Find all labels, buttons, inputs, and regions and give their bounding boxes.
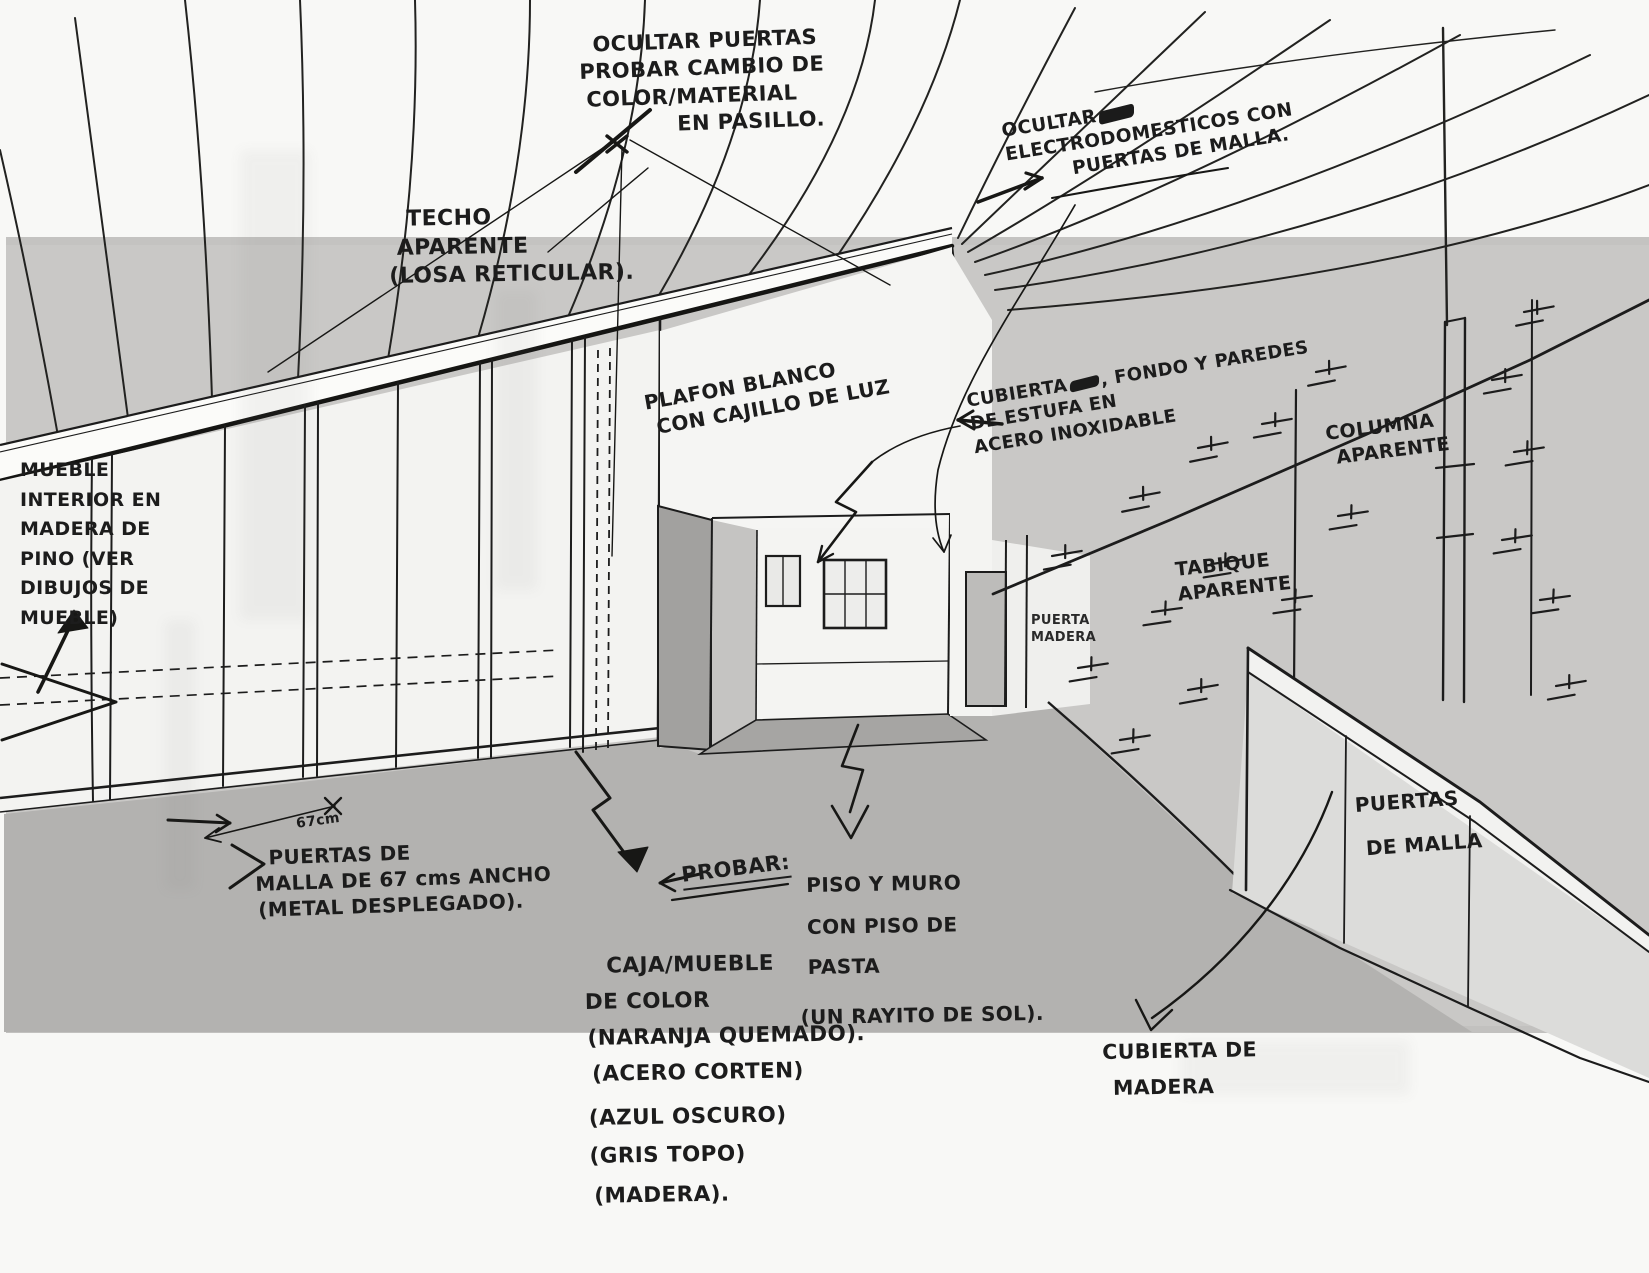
note-line: CON PISO DE: [807, 908, 1043, 942]
note-line: (MADERA).: [594, 1177, 868, 1212]
note-puertas-malla-der: PUERTAS DE MALLA: [1354, 783, 1483, 862]
crossed-out-word: [1099, 103, 1134, 125]
note-line: (UN RAYITO DE SOL).: [800, 998, 1044, 1032]
note-puerta-madera: PUERTA MADERA: [1031, 612, 1096, 646]
note-line: APARENTE: [396, 230, 633, 263]
note-line: EN PASILLO.: [677, 105, 827, 137]
note-puertas-malla-izq: PUERTAS DE MALLA DE 67 cms ANCHO (METAL …: [254, 835, 552, 923]
note-line: MADERA: [1031, 629, 1096, 646]
note-line: MUEBLE: [20, 456, 161, 486]
note-line: CUBIERTA DE: [1102, 1031, 1257, 1070]
note-line: MADERA DE: [20, 515, 161, 545]
note-piso-muro: PISO Y MURO CON PISO DE PASTA (UN RAYITO…: [806, 866, 1044, 1032]
crossed-out-word: [1069, 374, 1098, 393]
note-line: DIBUJOS DE: [20, 574, 161, 604]
note-cubierta-madera: CUBIERTA DE MADERA: [1102, 1031, 1258, 1106]
note-line: MUEBLE): [20, 604, 161, 634]
note-line: INTERIOR EN: [20, 486, 161, 516]
note-line: (GRIS TOPO): [589, 1137, 867, 1172]
note-line: (LOSA RETICULAR).: [389, 259, 634, 292]
sketch-page: OCULTAR PUERTAS PROBAR CAMBIO DE COLOR/M…: [0, 0, 1649, 1273]
ghost-print-smudge: [165, 620, 195, 890]
ghost-print-smudge: [240, 150, 310, 620]
note-line: (AZUL OSCURO): [589, 1099, 867, 1134]
note-line: PASTA: [807, 948, 1043, 982]
note-mueble-interior: MUEBLE INTERIOR EN MADERA DE PINO (VER D…: [20, 456, 161, 633]
note-line: PINO (VER: [20, 545, 161, 575]
note-line: MADERA: [1113, 1067, 1258, 1106]
note-line: PUERTA: [1031, 612, 1096, 629]
note-line: PISO Y MURO: [806, 866, 1042, 900]
note-line: TECHO: [406, 202, 633, 235]
note-line: (ACERO CORTEN): [592, 1055, 866, 1090]
ghost-print-smudge: [495, 290, 537, 590]
note-techo: TECHO APARENTE (LOSA RETICULAR).: [388, 202, 634, 292]
note-ocultar-puertas: OCULTAR PUERTAS PROBAR CAMBIO DE COLOR/M…: [578, 23, 827, 141]
